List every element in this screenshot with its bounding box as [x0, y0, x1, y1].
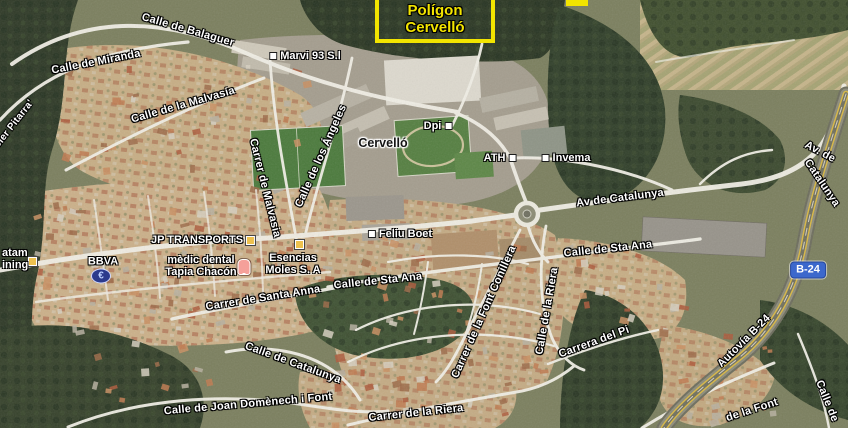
b24-road-shield: B-24 — [790, 262, 826, 279]
tooth-icon[interactable] — [238, 259, 251, 275]
poi-feliu-boet[interactable]: Feliu Boet — [368, 228, 432, 240]
business-partial-left-edge[interactable]: atam ining — [2, 247, 28, 271]
highlight-box-poligon-cervello: Polígon Cervelló — [375, 0, 495, 43]
poi-marker-icon — [444, 122, 452, 130]
poi-invema[interactable]: Invema — [542, 152, 591, 164]
poi-ath[interactable]: ATH — [484, 152, 517, 164]
business-jp-transports[interactable]: JP TRANSPORTS — [151, 234, 255, 246]
poi-marker-icon — [542, 154, 550, 162]
business-esencias-moles[interactable]: Esencias Moles S. A — [265, 252, 320, 276]
euro-atm-icon[interactable]: € — [91, 269, 111, 284]
business-marker-icon[interactable] — [295, 240, 304, 249]
map-viewport[interactable]: Calle de Balaguer Calle de Miranda oler … — [0, 0, 848, 428]
business-bbva[interactable]: BBVA — [88, 255, 118, 268]
business-marker-icon — [246, 236, 255, 245]
highlight-fragment — [566, 0, 588, 6]
poi-dpi[interactable]: Dpi — [424, 120, 453, 132]
business-marker-icon[interactable] — [28, 257, 37, 266]
poi-marker-icon — [508, 154, 516, 162]
poi-marker-icon — [269, 52, 277, 60]
business-medic-dental[interactable]: mèdic dental Tapia Chacón — [165, 254, 236, 278]
town-label-cervello: Cervelló — [358, 136, 407, 150]
poi-marvi-93[interactable]: Marvi 93 S.l — [269, 50, 341, 62]
poi-marker-icon — [368, 230, 376, 238]
